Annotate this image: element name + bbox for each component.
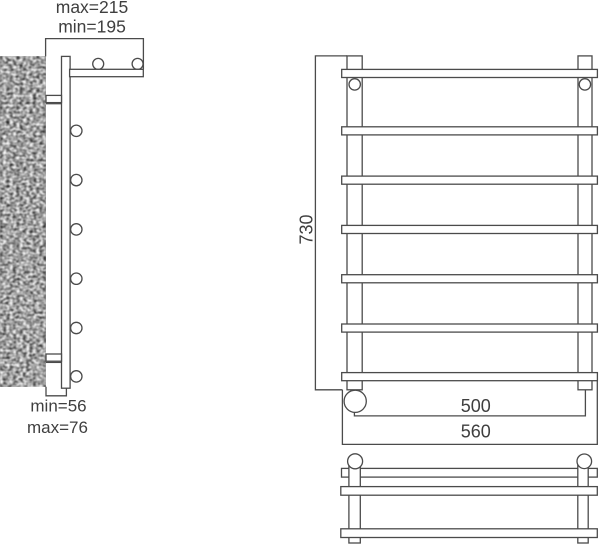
svg-text:min=56: min=56	[30, 396, 86, 415]
svg-text:min=195: min=195	[58, 17, 126, 37]
svg-text:500: 500	[461, 396, 491, 416]
svg-text:max=76: max=76	[27, 418, 88, 437]
svg-text:560: 560	[461, 422, 491, 442]
svg-text:730: 730	[296, 214, 316, 244]
svg-text:max=215: max=215	[56, 0, 128, 17]
